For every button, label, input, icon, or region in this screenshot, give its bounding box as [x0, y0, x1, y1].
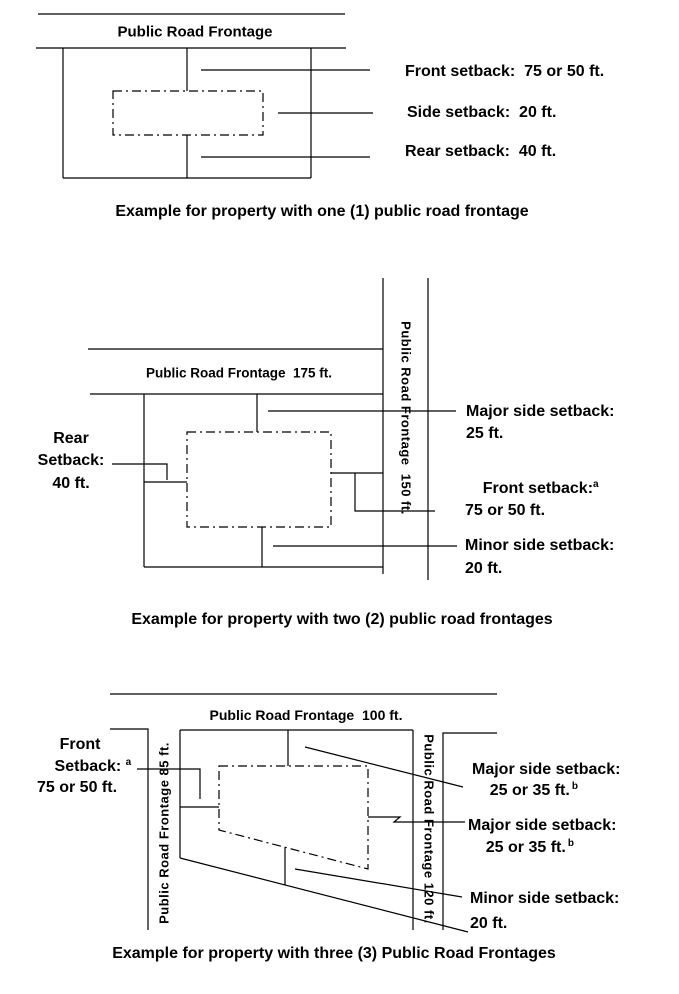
d2-rear-leader-line	[112, 464, 167, 480]
d1-rear-setback-label: Rear setback: 40 ft.	[405, 144, 556, 160]
d3-road-frontage-right-label: Public Road Frontage 120 ft.	[423, 734, 436, 924]
d2-minor-side-setback-label: Minor side setback:	[465, 538, 614, 554]
d1-caption: Example for property with one (1) public…	[115, 204, 528, 220]
d3-minor-leader-line	[295, 869, 462, 897]
d2-front-setback-value: 75 or 50 ft.	[465, 503, 545, 519]
d3-front-setback-text: Setback:	[55, 758, 126, 775]
d3-footnote-b-2: b	[568, 838, 574, 849]
d3-major-side-setback-1-value: 25 or 35 ft.b	[472, 767, 578, 815]
d2-front-leader-line	[355, 473, 435, 511]
d2-front-setback-text: Front setback:	[483, 480, 593, 497]
d2-minor-side-setback-value: 20 ft.	[465, 561, 502, 577]
d3-major2-leader-line	[368, 817, 465, 822]
d3-road-frontage-top-label: Public Road Frontage 100 ft.	[210, 708, 403, 722]
d3-major1-leader-line	[305, 747, 463, 787]
d2-rear-setback-label-line3: 40 ft.	[52, 476, 89, 492]
d1-side-setback-label: Side setback: 20 ft.	[407, 105, 556, 121]
d2-major-side-setback-value: 25 ft.	[466, 426, 503, 442]
d3-minor-side-setback-label: Minor side setback:	[470, 891, 619, 907]
d2-building-envelope	[187, 432, 331, 527]
d1-road-frontage-label: Public Road Frontage	[117, 25, 272, 40]
d3-road-frontage-left-label: Public Road Frontage 85 ft.	[158, 742, 171, 924]
d3-building-envelope	[219, 766, 368, 869]
d3-footnote-b-1: b	[572, 781, 578, 792]
setback-diagrams-page: Public Road Frontage Front setback: 75 o…	[0, 0, 679, 994]
d2-rear-setback-label-line1: Rear	[53, 431, 89, 447]
d2-road-frontage-top-label: Public Road Frontage 175 ft.	[146, 366, 332, 380]
d3-major1-value-text: 25 or 35 ft.	[490, 782, 570, 799]
d2-major-side-setback-label: Major side setback:	[466, 404, 615, 420]
d3-major-side-setback-2-value: 25 or 35 ft.b	[468, 824, 574, 872]
d1-building-envelope	[113, 91, 263, 135]
d3-minor-side-setback-value: 20 ft.	[470, 916, 507, 932]
d3-footnote-a: a	[126, 757, 132, 768]
d3-caption: Example for property with three (3) Publ…	[112, 946, 556, 962]
d3-major2-value-text: 25 or 35 ft.	[486, 839, 566, 856]
d3-front-setback-label-line3: 75 or 50 ft.	[37, 780, 117, 796]
d2-rear-setback-label-line2: Setback:	[38, 453, 105, 469]
d2-footnote-a: a	[593, 479, 599, 490]
d2-caption: Example for property with two (2) public…	[131, 612, 552, 628]
d1-front-setback-label: Front setback: 75 or 50 ft.	[405, 64, 604, 80]
d2-road-frontage-right-label: Public Road Frontage 150 ft.	[400, 321, 413, 515]
